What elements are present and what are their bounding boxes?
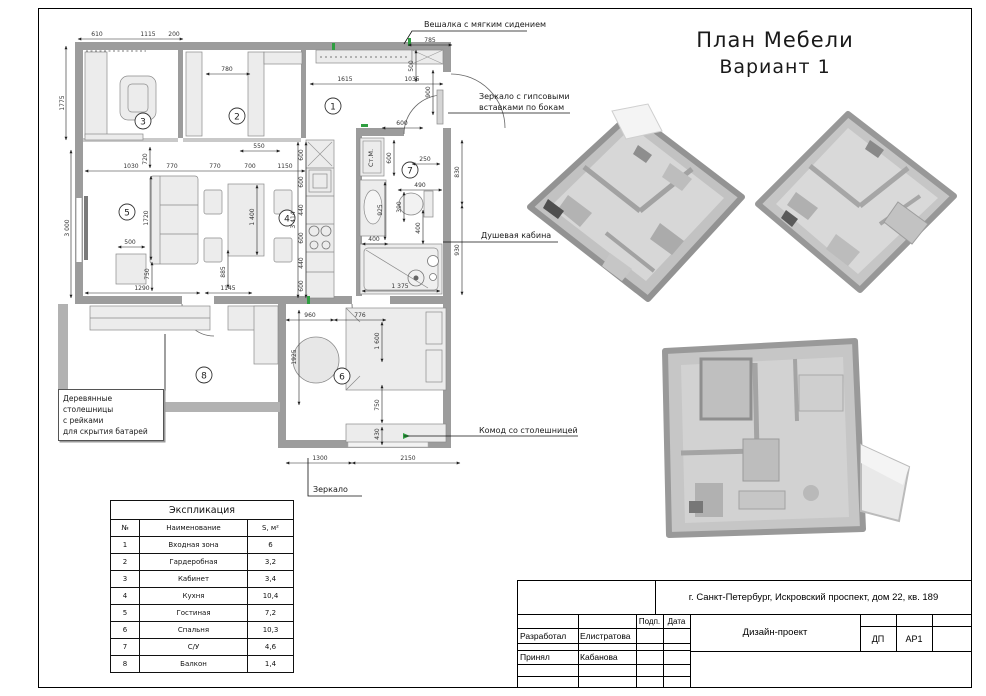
dim-label: 885 (220, 266, 227, 278)
dim-label: 440 (298, 204, 305, 216)
legend-cell-num: 6 (111, 622, 140, 639)
dim-label: 1030 (123, 163, 138, 170)
legend-cell-name: Гостиная (140, 605, 248, 622)
dim-label: 490 (414, 182, 426, 189)
legend-cell-num: 2 (111, 554, 140, 571)
annotation-worktops-box: Деревянные столешницы с рейками для скры… (58, 389, 164, 441)
dim-label: 720 (142, 153, 149, 165)
legend-cell-name: С/У (140, 639, 248, 656)
titleblock-accepted-name: Кабанова (580, 650, 636, 664)
titleblock-developed-label: Разработал (520, 628, 578, 643)
legend-cell-name: Кухня (140, 588, 248, 605)
legend-cell-name: Кабинет (140, 571, 248, 588)
dim-label: 776 (354, 312, 366, 319)
titleblock-code-dp: ДП (860, 626, 896, 651)
legend-row: 8 Балкон 1,4 (111, 656, 294, 673)
legend-cell-area: 4,6 (248, 639, 294, 656)
legend-row: 3 Кабинет 3,4 (111, 571, 294, 588)
dim-label: 1145 (220, 285, 235, 292)
legend-cell-area: 7,2 (248, 605, 294, 622)
dim-label: 770 (209, 163, 221, 170)
legend-cell-area: 10,4 (248, 588, 294, 605)
dim-label: 930 (454, 244, 461, 256)
dim-label: 750 (374, 399, 381, 411)
legend-cell-num: 1 (111, 537, 140, 554)
dim-label: 780 (221, 66, 233, 73)
legend-title: Экспликация (111, 501, 294, 520)
dim-label: 1115 (140, 31, 155, 38)
room-7: 7 (407, 167, 413, 177)
titleblock-address: г. Санкт-Петербург, Искровский проспект,… (655, 580, 972, 614)
dim-label: 785 (424, 37, 436, 44)
legend-cell-num: 8 (111, 656, 140, 673)
dim-label: 600 (298, 280, 305, 292)
titleblock-developed-name: Елистратова (580, 628, 636, 643)
legend-cell-num: 3 (111, 571, 140, 588)
annotation-mirror-gypsum-2: вставками по бокам (479, 103, 564, 112)
furniture (84, 50, 446, 442)
legend-header-num: № (111, 520, 140, 537)
render-3d-c (665, 341, 909, 535)
dim-label: 1615 (337, 76, 352, 83)
worktops-line-3: для скрытия батарей (63, 426, 159, 437)
legend-row: 5 Гостиная 7,2 (111, 605, 294, 622)
legend-row: 6 Спальня 10,3 (111, 622, 294, 639)
dim-label: 1775 (59, 95, 66, 110)
dim-label: 830 (454, 166, 461, 178)
legend-cell-name: Спальня (140, 622, 248, 639)
legend-cell-num: 4 (111, 588, 140, 605)
legend-cell-area: 3,2 (248, 554, 294, 571)
legend-header-name: Наименование (140, 520, 248, 537)
dim-label: 400 (415, 222, 422, 234)
dim-label: 2150 (400, 455, 415, 462)
legend-table: Экспликация № Наименование S, м² 1 Входн… (110, 500, 294, 673)
titleblock-date-label: Дата (663, 614, 690, 628)
title-line-1: План Мебели (640, 28, 910, 52)
dim-label: 600 (298, 176, 305, 188)
title-line-2: Вариант 1 (640, 56, 910, 78)
legend-cell-name: Входная зона (140, 537, 248, 554)
dim-label: 550 (253, 143, 265, 150)
dim-label: 250 (419, 156, 431, 163)
dim-label: 440 (298, 257, 305, 269)
worktops-line-1: Деревянные столешницы (63, 393, 159, 415)
legend-row: 4 Кухня 10,4 (111, 588, 294, 605)
dim-label: 1150 (277, 163, 292, 170)
legend-cell-area: 10,3 (248, 622, 294, 639)
dim-label: 600 (298, 149, 305, 161)
drawing-sheet: Ст.М. 1 2 3 4 5 (0, 0, 986, 696)
dim-label: 600 (298, 232, 305, 244)
dim-label: 390 (396, 201, 403, 213)
annotation-shower: Душевая кабина (481, 231, 551, 240)
annotation-mirror-gypsum-1: Зеркало с гипсовыми (479, 92, 570, 101)
dim-label: 770 (166, 163, 178, 170)
render-3d-b (758, 114, 954, 290)
dim-label: 750 (144, 268, 151, 280)
legend-row: 7 С/У 4,6 (111, 639, 294, 656)
dim-label: 500 (124, 239, 136, 246)
legend-row: 1 Входная зона 6 (111, 537, 294, 554)
legend-cell-num: 7 (111, 639, 140, 656)
dim-label: 1 600 (374, 332, 381, 349)
dim-label: 960 (304, 312, 316, 319)
dim-label: 3 000 (64, 219, 71, 236)
washer-label: Ст.М. (367, 149, 375, 167)
legend-cell-name: Балкон (140, 656, 248, 673)
dim-label: 600 (396, 120, 408, 127)
dim-label: 1290 (134, 285, 149, 292)
dim-label: 925 (377, 204, 384, 216)
legend-cell-area: 1,4 (248, 656, 294, 673)
annotation-commode: Комод со столешницей (479, 426, 578, 435)
room-2: 2 (234, 113, 240, 123)
dim-label: 1720 (143, 210, 150, 225)
sheet-title: План Мебели Вариант 1 (640, 28, 910, 78)
titleblock-sign-label: Подп. (636, 614, 663, 628)
dim-label: 400 (368, 236, 380, 243)
titleblock-project: Дизайн-проект (690, 614, 860, 651)
legend-header-area: S, м² (248, 520, 294, 537)
render-3d-a (530, 104, 742, 299)
annotation-hanger: Вешалка с мягким сидением (424, 20, 546, 29)
titleblock-accepted-label: Принял (520, 650, 578, 664)
dim-label: 1035 (404, 76, 419, 83)
room-1: 1 (330, 103, 336, 113)
dim-label: 700 (244, 163, 256, 170)
dim-label: 610 (91, 31, 103, 38)
titleblock-code-ar1: АР1 (896, 626, 932, 651)
dim-label: 500 (408, 60, 415, 72)
legend-cell-name: Гардеробная (140, 554, 248, 571)
dim-label: 900 (425, 86, 432, 98)
dim-label: 1925 (291, 349, 298, 364)
annotation-mirror: Зеркало (313, 485, 348, 494)
dim-label: 430 (374, 428, 381, 440)
worktops-line-2: с рейками (63, 415, 159, 426)
room-3: 3 (140, 118, 146, 128)
legend-cell-area: 6 (248, 537, 294, 554)
room-5: 5 (124, 209, 130, 219)
room-6: 6 (339, 373, 345, 383)
legend-row: 2 Гардеробная 3,2 (111, 554, 294, 571)
dim-label: 1 375 (391, 283, 408, 290)
legend-cell-area: 3,4 (248, 571, 294, 588)
dim-label: 3 414 (290, 211, 297, 228)
legend-cell-num: 5 (111, 605, 140, 622)
room-8: 8 (201, 372, 207, 382)
dim-label: 1 400 (249, 208, 256, 225)
dim-label: 600 (386, 152, 393, 164)
dim-label: 200 (168, 31, 180, 38)
dim-label: 1300 (312, 455, 327, 462)
